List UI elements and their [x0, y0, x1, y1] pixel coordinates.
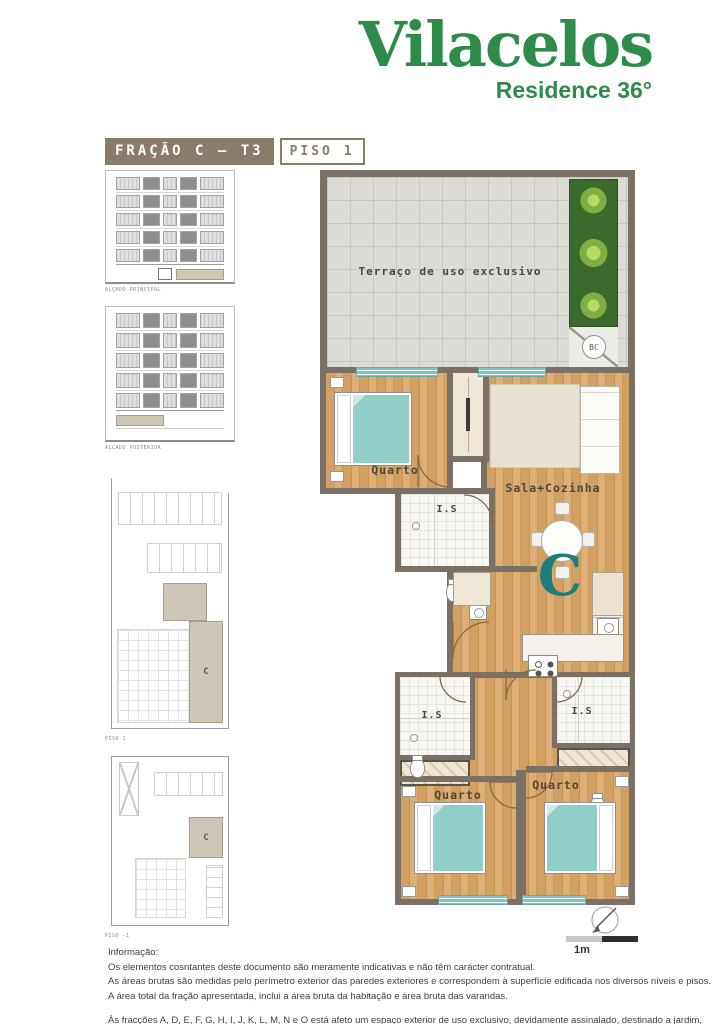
fraction-header: FRAÇÃO C – T3 PISO 1: [105, 138, 365, 165]
parking-row: [154, 772, 224, 796]
shower-drain: [412, 522, 420, 530]
north-arrow-icon: [586, 903, 624, 939]
elevation-rear-drawing: [105, 306, 235, 442]
shower-drain: [410, 734, 418, 742]
interior-wall: [526, 766, 635, 772]
room-label-is-2: I.S: [412, 710, 452, 721]
nightstand: [615, 776, 629, 787]
chair: [582, 532, 595, 547]
nightstand: [615, 886, 629, 897]
room-label-sala: Sala+Cozinha: [488, 481, 618, 495]
room-label-quarto-3: Quarto: [506, 778, 606, 792]
elevation-shop-front: [176, 269, 224, 280]
rug: [490, 384, 580, 468]
figure-label: ALÇADO POSTERIOR: [105, 445, 235, 451]
window: [522, 895, 586, 905]
keyplan-drawing: C: [105, 754, 235, 930]
elevation-door: [158, 268, 172, 280]
page: Vilacelos Residence 36° FRAÇÃO C – T3 PI…: [0, 0, 724, 1024]
room-label-is-3: I.S: [560, 706, 604, 717]
info-note: Às fracções A, D, E, F, G, H, I, J, K, L…: [108, 1014, 720, 1024]
legal-footer: Informação: Os elementos cosntantes dest…: [108, 946, 720, 1024]
brand-logo: Vilacelos Residence 36°: [359, 16, 652, 104]
pillow: [599, 805, 613, 871]
scale-segment: [602, 936, 638, 942]
mattress: [433, 805, 483, 871]
window: [478, 367, 546, 377]
unit-letter: C: [190, 622, 223, 722]
technical-corner: BC: [569, 327, 618, 367]
figure-keyplan-piso1: C PISO 1: [105, 471, 235, 742]
bc-marker: BC: [582, 335, 606, 359]
terrace: Terraço de uso exclusivo BC: [320, 170, 635, 374]
info-line: A área total da fração apresentada, incl…: [108, 990, 720, 1005]
scale-segment: [566, 936, 602, 942]
wardrobe-closet: [447, 367, 489, 462]
other-units: [117, 629, 194, 723]
pillow: [417, 805, 431, 871]
figure-elevation-rear: ALÇADO POSTERIOR: [105, 306, 235, 451]
mattress: [353, 395, 409, 463]
nightstand: [402, 886, 416, 897]
terrace-label: Terraço de uso exclusivo: [340, 265, 560, 278]
unit-c-highlight: C: [189, 621, 224, 723]
room-bathroom-1: [395, 488, 495, 572]
floor-badge: PISO 1: [280, 138, 365, 165]
shower-drain: [563, 690, 571, 698]
figure-label: PISO 1: [105, 736, 235, 742]
stove: [528, 655, 558, 677]
bathroom-sink: [469, 604, 487, 620]
common-area-highlight: [163, 583, 207, 621]
nightstand: [330, 377, 344, 388]
unit-c-highlight: C: [189, 817, 224, 857]
garden-strip: [118, 492, 222, 525]
info-title: Informação:: [108, 946, 720, 961]
chair: [555, 502, 570, 515]
unit-letter-c: C: [522, 548, 598, 604]
toilet: [410, 758, 425, 778]
fraction-label: FRAÇÃO C – T3: [105, 138, 274, 165]
elevation-front-drawing: [105, 170, 235, 284]
bed: [414, 802, 486, 874]
figure-keyplan-piso-1: C PISO -1: [105, 754, 235, 939]
figure-elevation-front: ALÇADO PRINCIPAL: [105, 170, 235, 293]
floor-plan: Terraço de uso exclusivo BC: [320, 170, 635, 905]
mattress: [547, 805, 597, 871]
bed: [334, 392, 412, 466]
planter-garden: [569, 179, 618, 327]
window: [438, 895, 508, 905]
unit-letter: C: [190, 818, 223, 856]
scale-bar: [566, 936, 638, 942]
room-label-is-1: I.S: [422, 504, 472, 515]
info-line: Os elementos cosntantes deste documento …: [108, 961, 720, 976]
hall-closet: [453, 572, 491, 606]
ramp: [119, 762, 139, 816]
room-label-quarto-1: Quarto: [345, 463, 445, 477]
keyplan-drawing: C: [105, 471, 235, 733]
figure-label: ALÇADO PRINCIPAL: [105, 287, 235, 293]
storage-rooms: [135, 858, 186, 918]
elevation-shop-front: [116, 415, 164, 426]
garden-strip: [147, 543, 222, 573]
info-line: As áreas brutas são medidas pelo perímet…: [108, 975, 720, 990]
room-label-quarto-2: Quarto: [408, 788, 508, 802]
nightstand: [330, 471, 344, 482]
bed: [544, 802, 616, 874]
sofa: [580, 386, 620, 474]
brand-name: Vilacelos: [359, 16, 652, 75]
figure-label: PISO -1: [105, 933, 235, 939]
parking-row: [206, 865, 223, 919]
pillow: [337, 395, 351, 463]
window: [356, 367, 438, 377]
